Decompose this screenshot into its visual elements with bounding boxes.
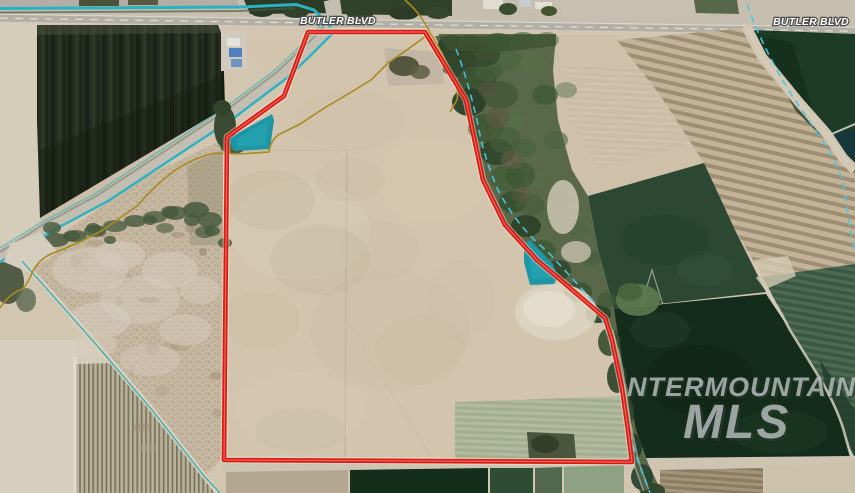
svg-text:MLS: MLS	[683, 396, 790, 449]
svg-text:BUTLER BLVD: BUTLER BLVD	[300, 15, 376, 27]
svg-text:BUTLER BLVD: BUTLER BLVD	[773, 16, 849, 28]
